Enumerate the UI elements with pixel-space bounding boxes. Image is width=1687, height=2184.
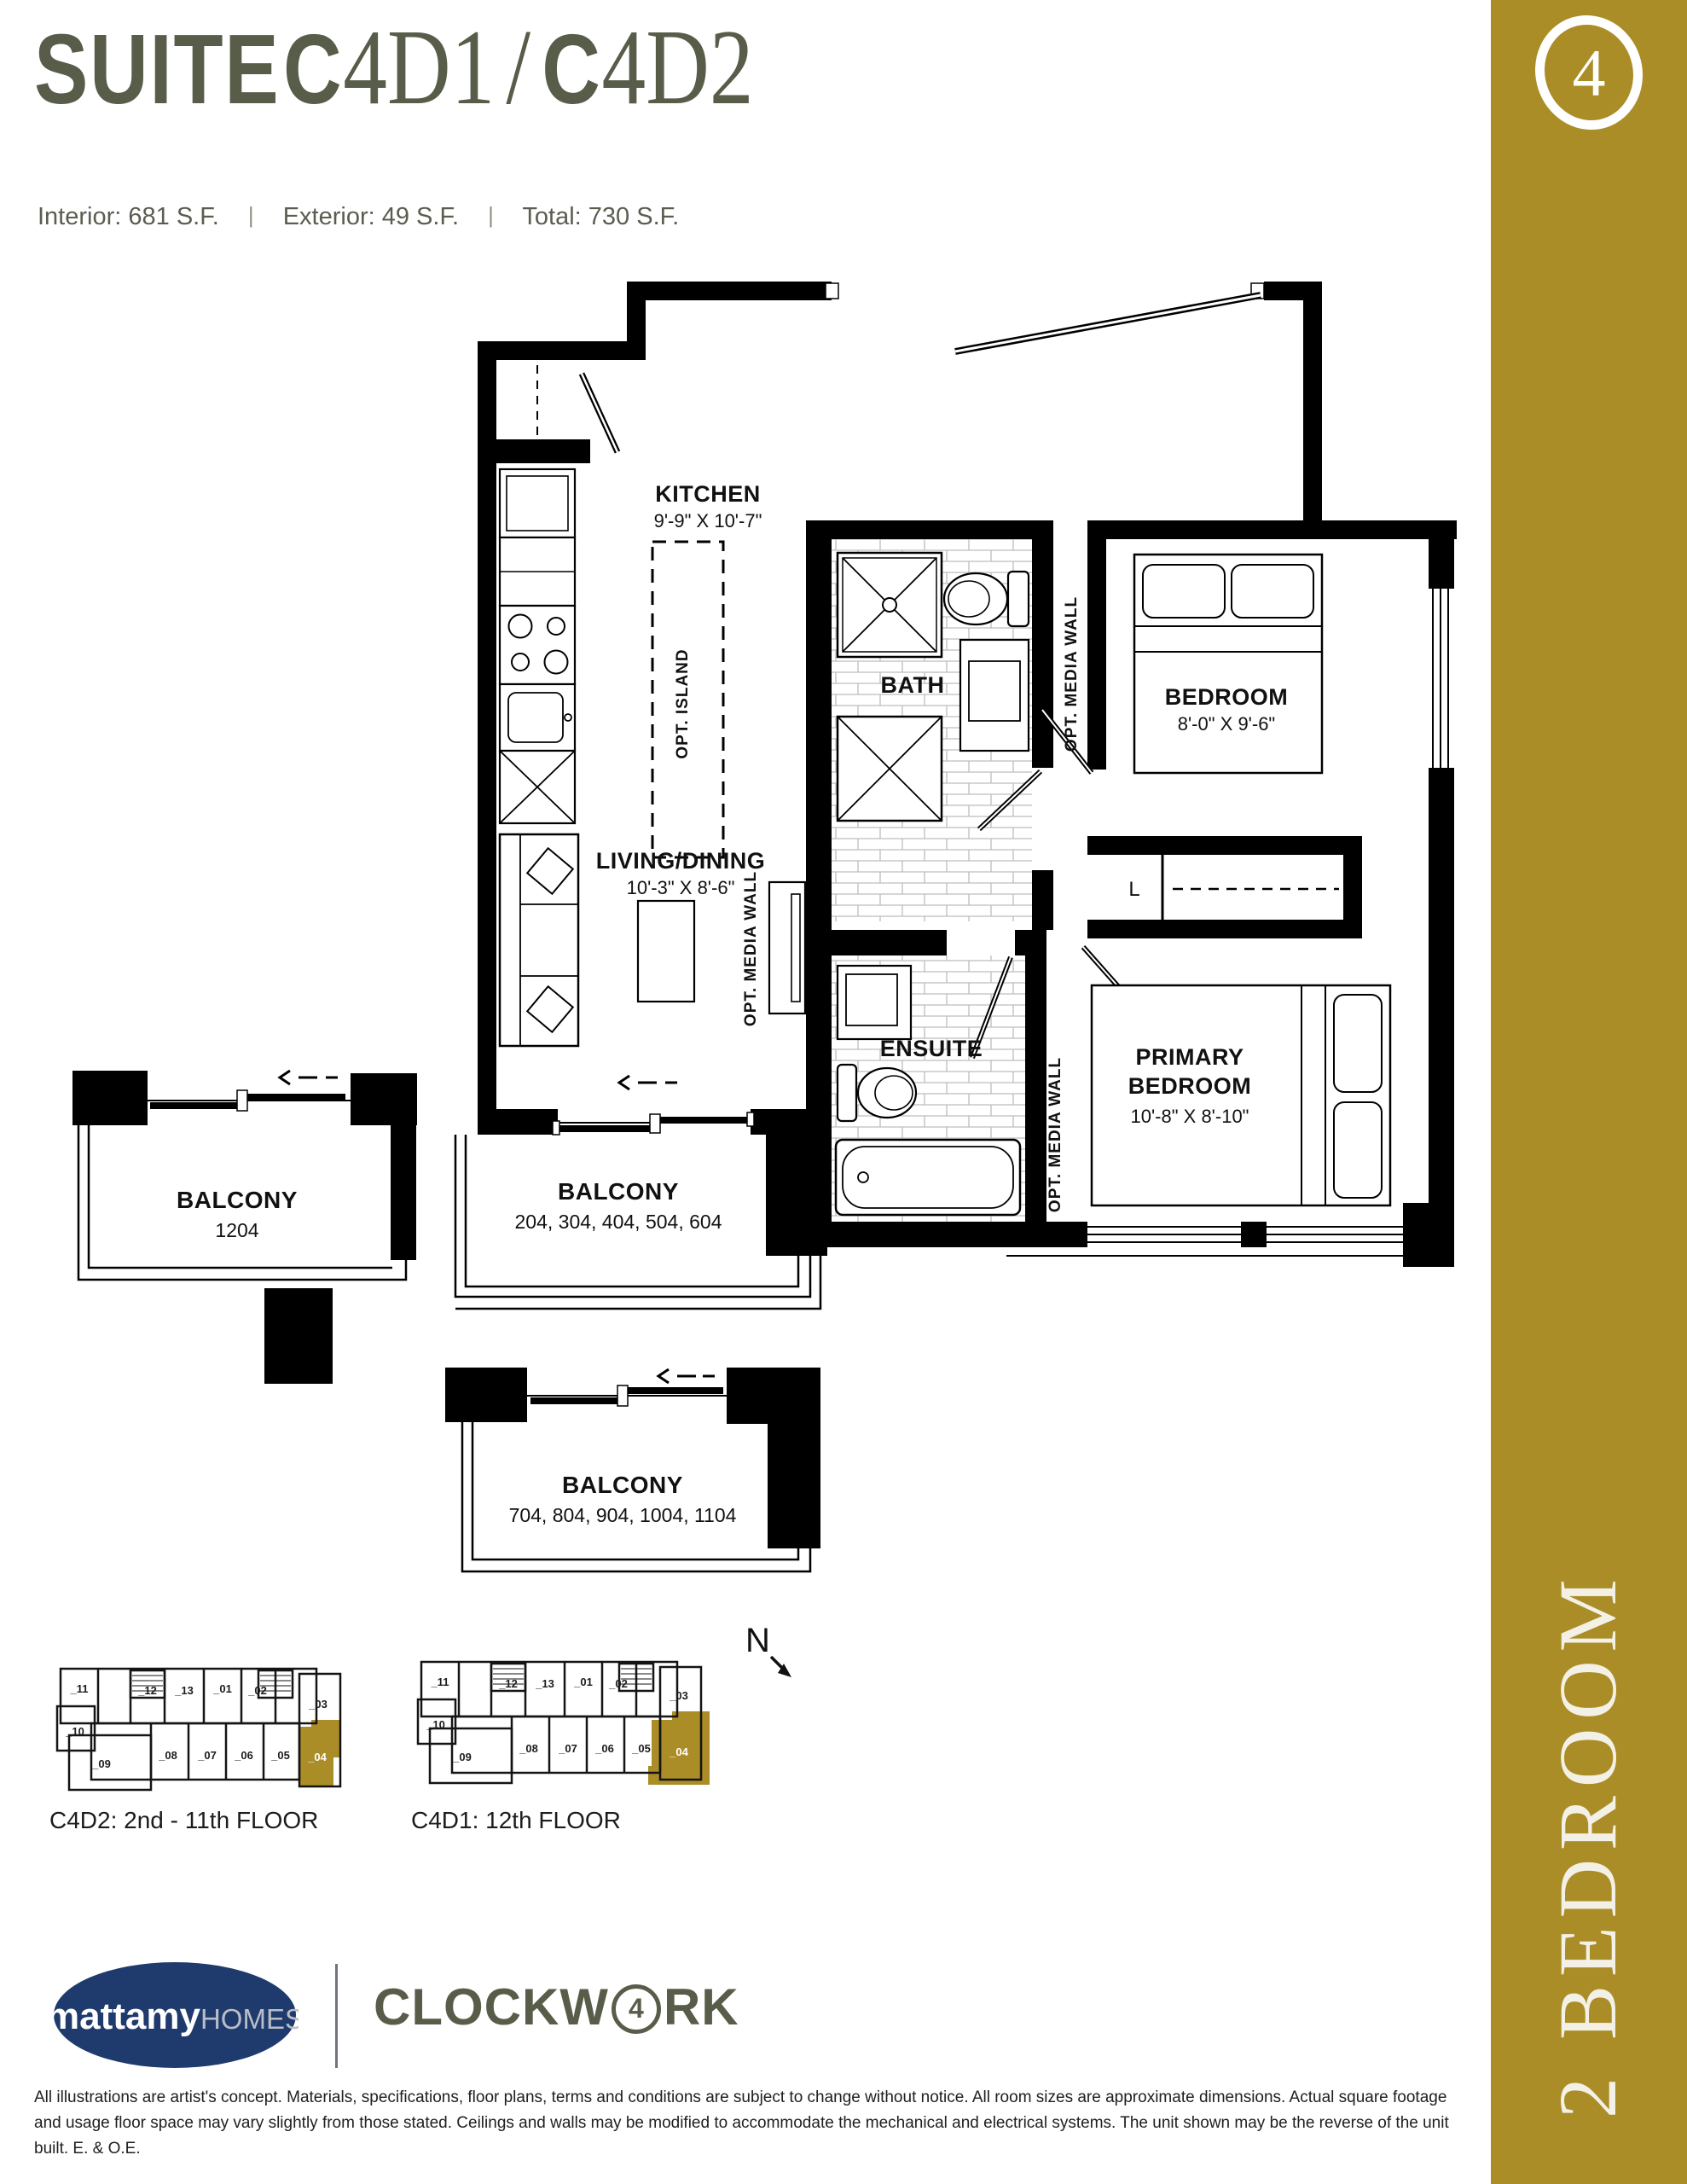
unit-label: _09 — [91, 1757, 111, 1770]
closets — [1162, 855, 1339, 920]
unit-label: _07 — [558, 1742, 577, 1755]
homes-wordmark: HOMES — [200, 2003, 299, 2035]
unit-label: _03 — [308, 1698, 328, 1711]
balcony-slider-main — [553, 1076, 754, 1135]
primary-label-1: PRIMARY — [1135, 1044, 1244, 1070]
balcony-left-units: 1204 — [215, 1219, 258, 1241]
unit-label: _05 — [631, 1742, 651, 1755]
keyplan-caption-c4d1: C4D1: 12th FLOOR — [411, 1807, 621, 1834]
balcony-low-units: 704, 804, 904, 1004, 1104 — [509, 1504, 737, 1526]
keyplan-caption-c4d2: C4D2: 2nd - 11th FLOOR — [49, 1807, 318, 1834]
unit-label: _01 — [212, 1682, 232, 1695]
unit-label: _11 — [431, 1676, 449, 1688]
exterior-value: 49 S.F. — [382, 203, 459, 230]
category-label: 2 BEDROOM — [1537, 1546, 1639, 2143]
page-title: SUITE C4D1/C4D2 — [34, 7, 753, 130]
floor-plan: KITCHEN 9'-9" X 10'-7" OPT. ISLAND BATH … — [26, 273, 1475, 1664]
total-label: Total: — [522, 203, 581, 230]
unit-label: _08 — [519, 1742, 538, 1755]
unit-label-highlighted: _04 — [307, 1751, 327, 1763]
opt-island-label: OPT. ISLAND — [674, 648, 692, 758]
unit-label: _11 — [70, 1682, 89, 1695]
bedroom-label: BEDROOM — [1165, 684, 1289, 710]
title-c2: C — [542, 14, 601, 125]
title-n1: 4D1 — [343, 9, 495, 127]
logo-divider — [335, 1964, 338, 2068]
keyplan-c4d2: _11 _12 _13 _01 _02 _03 _10 _09 _08 _07 … — [47, 1662, 345, 1807]
unit-label: _06 — [594, 1742, 614, 1755]
north-compass: N — [740, 1619, 800, 1695]
swing-arrow-icon — [619, 1076, 677, 1089]
compass-n: N — [745, 1622, 770, 1659]
opt-media-wall-living: OPT. MEDIA WALL — [742, 871, 760, 1026]
unit-label: _13 — [535, 1677, 554, 1690]
unit-label: _08 — [158, 1749, 177, 1762]
clockwork-part1: CLOCKW — [374, 1978, 609, 2036]
ensuite-label: ENSUITE — [880, 1036, 983, 1061]
clockwork-4-icon: 4 — [612, 1984, 661, 2034]
bath-label: BATH — [881, 672, 945, 698]
keyplan-c4d1: _11 _12 _13 _01 _02 _03 _10 _09 _08 _07 … — [408, 1655, 723, 1806]
balcony-left-label: BALCONY — [177, 1187, 298, 1213]
kitchen-label: KITCHEN — [655, 481, 761, 507]
primary-label-2: BEDROOM — [1128, 1073, 1252, 1099]
area-stats: Interior: 681 S.F. | Exterior: 49 S.F. |… — [38, 203, 679, 231]
keyplan-outline — [57, 1669, 340, 1790]
legal-disclaimer: All illustrations are artist's concept. … — [34, 2085, 1457, 2162]
badge-number: 4 — [1573, 36, 1606, 110]
bedroom-dims: 8'-0" X 9'-6" — [1178, 713, 1276, 735]
balcony-low-slider — [527, 1369, 727, 1406]
stats-divider: | — [248, 202, 254, 229]
unit-label: _09 — [452, 1751, 472, 1763]
living-dims: 10'-3" X 8'-6" — [627, 877, 735, 898]
balcony-mid-label: BALCONY — [558, 1178, 679, 1205]
unit-label: _06 — [234, 1749, 253, 1762]
unit-label: _10 — [65, 1725, 84, 1738]
primary-dims: 10'-8" X 8'-10" — [1131, 1106, 1249, 1127]
swing-arrow-icon — [658, 1369, 715, 1383]
balcony-low-label: BALCONY — [562, 1472, 683, 1498]
walls — [72, 282, 1457, 1548]
clockwork-logo: CLOCKW 4 RK — [374, 1978, 739, 2036]
living-label: LIVING/DINING — [596, 848, 766, 874]
unit-label-highlighted: _04 — [669, 1745, 688, 1758]
brochure-page: 4 2 BEDROOM SUITE C4D1/C4D2 Interior: 68… — [0, 0, 1687, 2184]
title-c1: C — [283, 14, 343, 125]
unit-label: _02 — [608, 1677, 628, 1690]
swing-arrow-icon — [280, 1071, 338, 1084]
unit-label: _12 — [498, 1677, 518, 1690]
interior-value: 681 S.F. — [128, 203, 218, 230]
unit-label: _05 — [270, 1749, 290, 1762]
entry-door-leaf — [955, 295, 1261, 351]
mattamy-wordmark: mattamy — [51, 1995, 201, 2037]
unit-label: _07 — [197, 1749, 217, 1762]
unit-label: _13 — [174, 1684, 194, 1697]
interior-label: Interior: — [38, 203, 121, 230]
opt-media-wall-bedroom: OPT. MEDIA WALL — [1063, 596, 1081, 752]
total-value: 730 S.F. — [588, 203, 679, 230]
title-suite: SUITE — [34, 14, 280, 125]
unit-label: _03 — [669, 1689, 688, 1702]
clockwork-part2: RK — [664, 1978, 739, 2036]
unit-label: _10 — [426, 1718, 445, 1731]
kitchen-dims: 9'-9" X 10'-7" — [654, 510, 762, 531]
mattamy-homes-logo: mattamyHOMES — [51, 1960, 299, 2073]
stats-divider: | — [488, 202, 494, 229]
balcony-left-slider — [148, 1071, 351, 1111]
opt-media-wall-primary: OPT. MEDIA WALL — [1046, 1057, 1064, 1212]
bedroom-furniture — [1134, 555, 1322, 773]
title-n2: 4D2 — [602, 9, 754, 127]
balcony-mid-units: 204, 304, 404, 504, 604 — [515, 1211, 722, 1233]
unit-label: _01 — [573, 1676, 593, 1688]
title-slash: / — [506, 9, 530, 127]
clockwork-4-badge: 4 — [1523, 7, 1655, 138]
exterior-label: Exterior: — [283, 203, 375, 230]
unit-label: _02 — [247, 1684, 267, 1697]
unit-label: _12 — [137, 1684, 157, 1697]
linen-closet-label: L — [1128, 878, 1139, 901]
